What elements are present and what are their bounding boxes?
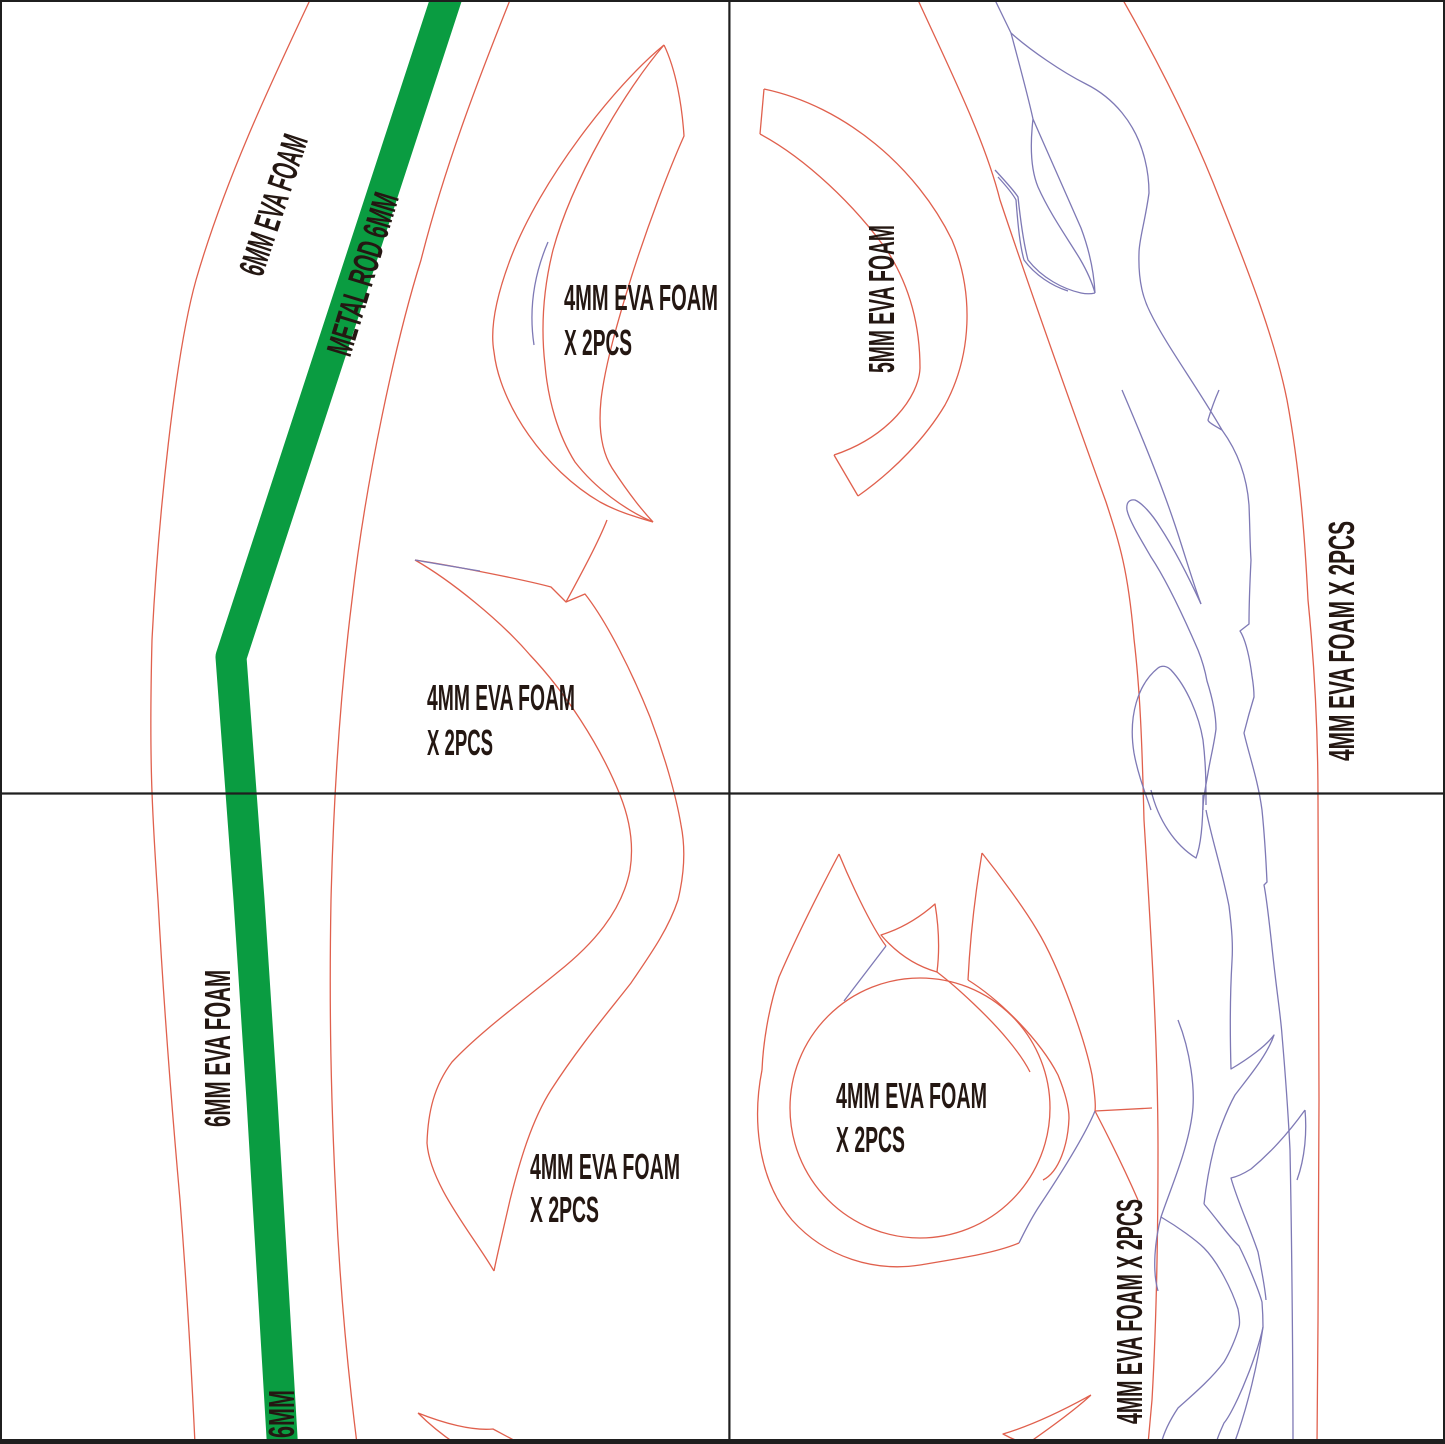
svg-text:5MM EVA FOAM: 5MM EVA FOAM	[861, 225, 902, 373]
svg-text:X 2PCS: X 2PCS	[564, 322, 632, 363]
svg-text:X 2PCS: X 2PCS	[836, 1119, 905, 1160]
svg-text:4MM EVA FOAM X 2PCS: 4MM EVA FOAM X 2PCS	[1321, 521, 1362, 761]
svg-text:6MM EVA FOAM: 6MM EVA FOAM	[197, 970, 238, 1127]
svg-text:X 2PCS: X 2PCS	[427, 722, 493, 763]
svg-text:4MM EVA FOAM: 4MM EVA FOAM	[530, 1146, 680, 1187]
svg-text:4MM EVA FOAM: 4MM EVA FOAM	[427, 677, 575, 718]
svg-text:X 2PCS: X 2PCS	[530, 1189, 599, 1230]
svg-text:4MM EVA FOAM: 4MM EVA FOAM	[836, 1075, 987, 1116]
svg-text:4MM EVA FOAM X 2PCS: 4MM EVA FOAM X 2PCS	[1109, 1199, 1150, 1424]
svg-text:6MM: 6MM	[261, 1390, 302, 1438]
svg-text:4MM EVA FOAM: 4MM EVA FOAM	[564, 277, 718, 318]
